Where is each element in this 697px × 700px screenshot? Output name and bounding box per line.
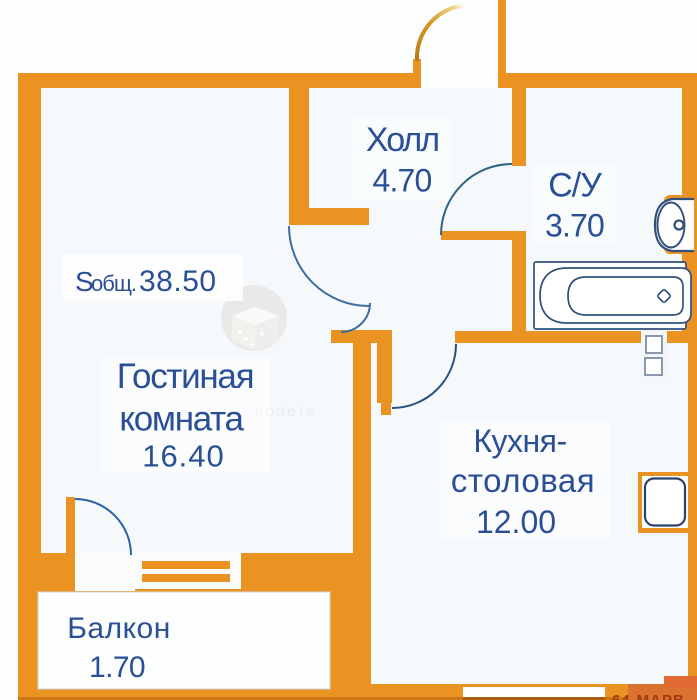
svg-text:64-МАРВ: 64-МАРВ <box>612 692 685 700</box>
svg-text:38.50: 38.50 <box>139 265 217 298</box>
svg-text:Кухня-: Кухня- <box>473 423 566 459</box>
svg-text:комната: комната <box>119 400 244 439</box>
svg-text:1.70: 1.70 <box>89 651 145 684</box>
svg-text:Холл: Холл <box>366 121 438 159</box>
svg-text:16.40: 16.40 <box>142 439 225 474</box>
svg-text:столовая: столовая <box>451 462 595 499</box>
svg-text:12.00: 12.00 <box>476 504 556 540</box>
svg-text:общ.: общ. <box>91 271 136 296</box>
svg-text:3.70: 3.70 <box>545 208 604 244</box>
svg-text:Балкон: Балкон <box>67 612 171 645</box>
svg-text:Гостиная: Гостиная <box>117 357 254 396</box>
svg-text:С/У: С/У <box>548 167 602 205</box>
svg-text:4.70: 4.70 <box>372 163 431 199</box>
